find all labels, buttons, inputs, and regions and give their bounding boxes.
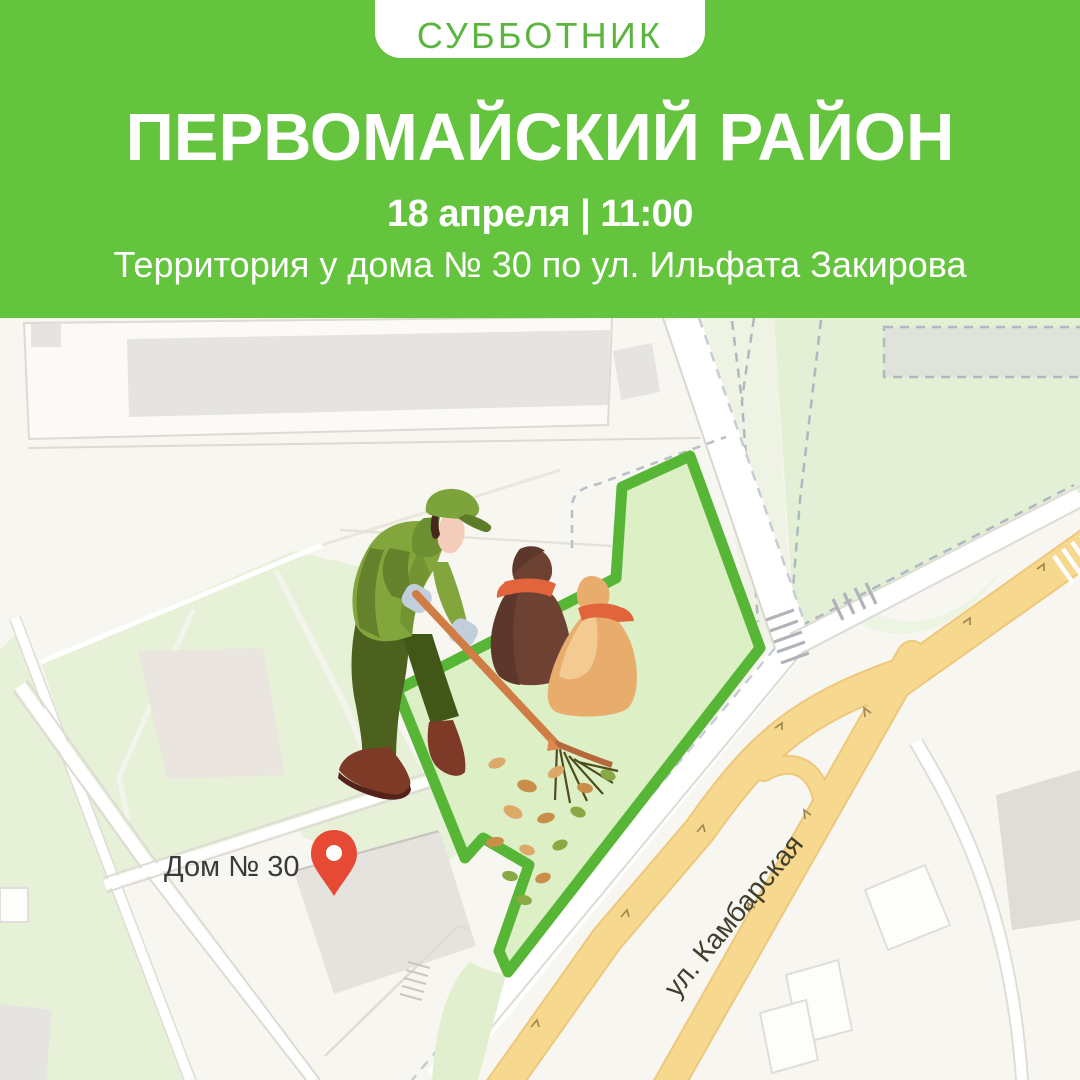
svg-text:Дом № 30: Дом № 30 <box>164 851 300 883</box>
